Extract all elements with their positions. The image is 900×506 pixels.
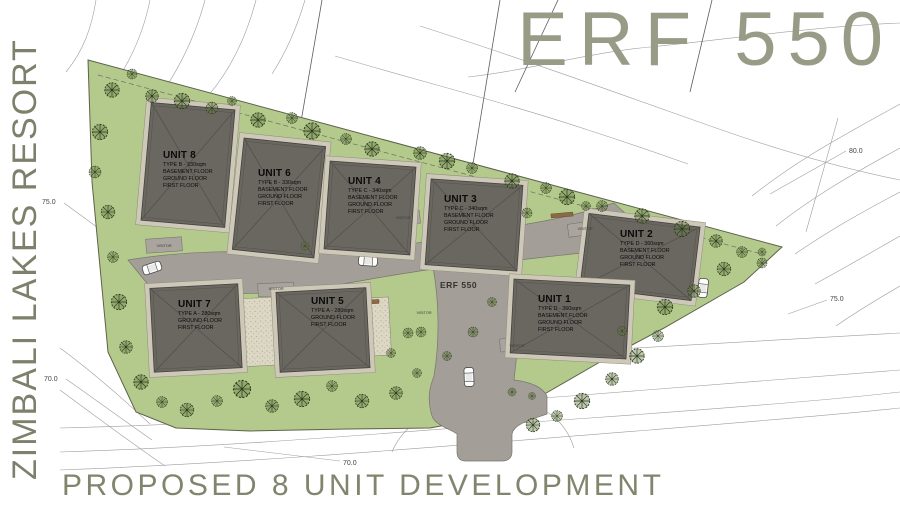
car-icon xyxy=(464,367,474,386)
unit-name: UNIT 6 xyxy=(258,168,291,179)
unit-type: TYPE D - 360sqm xyxy=(538,306,582,312)
unit-floor: FIRST FLOOR xyxy=(163,183,199,189)
unit-type: TYPE B - 330sqm xyxy=(163,162,207,168)
tree-icon xyxy=(266,400,279,413)
unit-name: UNIT 7 xyxy=(178,299,211,310)
visitor-bay-label: VISITOR xyxy=(577,227,592,231)
unit-building xyxy=(505,274,635,364)
unit-floor: BASEMENT FLOOR xyxy=(348,195,398,201)
tree-icon xyxy=(688,285,701,298)
unit-floor: BASEMENT FLOOR xyxy=(538,313,588,319)
unit-type: TYPE A - 280sqm xyxy=(178,311,221,317)
contour-line xyxy=(836,286,900,326)
unit-type: TYPE D - 360sqm xyxy=(620,241,664,247)
visitor-bay-label: VISITOR xyxy=(268,287,283,291)
unit-name: UNIT 2 xyxy=(620,229,653,240)
road-erf-label: ERF 550 xyxy=(440,280,477,290)
unit-floor: BASEMENT FLOOR xyxy=(620,248,670,254)
contour-line xyxy=(806,118,838,232)
tree-icon xyxy=(228,97,237,106)
unit-floor: FIRST FLOOR xyxy=(538,327,574,333)
visitor-bay-label: VISITOR xyxy=(509,344,524,348)
unit-type: TYPE A - 280sqm xyxy=(311,308,354,314)
tree-icon xyxy=(522,208,532,218)
tree-icon xyxy=(559,189,574,204)
tree-icon xyxy=(111,294,126,309)
unit-floor: BASEMENT FLOOR xyxy=(258,187,308,193)
unit-name: UNIT 3 xyxy=(444,194,477,205)
unit-floor: GROUND FLOOR xyxy=(163,176,207,182)
tree-icon xyxy=(630,349,644,363)
tree-icon xyxy=(541,183,552,194)
unit-floor: GROUND FLOOR xyxy=(620,255,664,261)
tree-icon xyxy=(387,349,396,358)
tree-icon xyxy=(105,83,119,97)
tree-icon xyxy=(127,69,137,79)
tree-icon xyxy=(488,298,497,307)
visitor-bay-label: VISITOR xyxy=(416,311,431,315)
unit-building xyxy=(319,156,422,260)
tree-icon xyxy=(674,221,689,236)
site-plan-page: ERF 550 UNIT 8TYPE B - 330sqmBASEMENT FL… xyxy=(0,0,900,506)
tree-icon xyxy=(439,153,454,168)
tree-icon xyxy=(327,381,338,392)
tree-icon xyxy=(758,248,766,256)
tree-icon xyxy=(206,102,218,114)
tree-icon xyxy=(403,328,413,338)
visitor-bay-label: VISITOR xyxy=(156,244,171,248)
tree-icon xyxy=(468,327,478,337)
unit-name: UNIT 4 xyxy=(348,176,381,187)
erf-main-title: ERF 550 xyxy=(474,0,894,80)
tree-icon xyxy=(92,124,107,139)
tree-icon xyxy=(89,166,101,178)
tree-icon xyxy=(467,163,478,174)
tree-icon xyxy=(528,392,535,399)
unit-type: TYPE C - 340sqm xyxy=(348,188,392,194)
contour-label-75-right: 75.0 xyxy=(830,296,844,303)
tree-icon xyxy=(597,201,608,212)
unit-floor: GROUND FLOOR xyxy=(178,318,222,324)
unit-floor: FIRST FLOOR xyxy=(178,325,214,331)
tree-icon xyxy=(174,93,189,108)
tree-icon xyxy=(108,252,119,263)
tree-icon xyxy=(737,247,748,258)
tree-icon xyxy=(552,411,563,422)
tree-icon xyxy=(101,205,115,219)
contour-label-70-left: 70.0 xyxy=(44,376,58,383)
tree-icon xyxy=(287,113,298,124)
development-bottom-title: PROPOSED 8 UNIT DEVELOPMENT xyxy=(62,469,664,503)
tree-icon xyxy=(657,299,672,314)
tree-icon xyxy=(508,388,516,396)
tree-icon xyxy=(526,418,540,432)
contour-line xyxy=(788,300,827,314)
tree-icon xyxy=(582,202,591,211)
tree-icon xyxy=(505,174,519,188)
unit-floor: GROUND FLOOR xyxy=(444,220,488,226)
unit-type: TYPE B - 330sqm xyxy=(258,180,302,186)
unit-floor: FIRST FLOOR xyxy=(311,322,347,328)
tree-icon xyxy=(304,123,320,139)
tree-icon xyxy=(341,134,352,145)
unit-name: UNIT 1 xyxy=(538,294,571,305)
contour-line xyxy=(224,447,340,461)
tree-icon xyxy=(146,90,159,103)
contour-label-70-bottom: 70.0 xyxy=(343,460,357,467)
unit-floor: FIRST FLOOR xyxy=(444,227,480,233)
tree-icon xyxy=(180,403,194,417)
unit-floor: GROUND FLOOR xyxy=(538,320,582,326)
contour-line xyxy=(208,0,256,96)
tree-icon xyxy=(653,331,664,342)
tree-icon xyxy=(618,327,627,336)
tree-icon xyxy=(301,242,309,250)
tree-icon xyxy=(157,397,168,408)
contour-label-80: 80.0 xyxy=(849,148,863,155)
tree-icon xyxy=(120,341,133,354)
unit-floor: FIRST FLOOR xyxy=(258,201,294,207)
unit-floor: GROUND FLOOR xyxy=(348,202,392,208)
unit-name: UNIT 8 xyxy=(163,150,196,161)
tree-icon xyxy=(390,387,403,400)
resort-side-title: ZIMBALI LAKES RESORT xyxy=(6,0,45,480)
unit-floor: FIRST FLOOR xyxy=(620,262,656,268)
tree-icon xyxy=(134,375,148,389)
tree-icon xyxy=(635,209,649,223)
unit-floor: BASEMENT FLOOR xyxy=(444,213,494,219)
tree-icon xyxy=(294,391,309,406)
tree-icon xyxy=(212,396,223,407)
unit-name: UNIT 5 xyxy=(311,296,344,307)
unit-floor: GROUND FLOOR xyxy=(258,194,302,200)
contour-line xyxy=(776,148,900,226)
tree-icon xyxy=(413,369,422,378)
visitor-bay-label: VISITOR xyxy=(395,216,410,220)
tree-icon xyxy=(757,258,767,268)
tree-icon xyxy=(416,327,426,337)
unit-floor: FIRST FLOOR xyxy=(348,209,384,215)
tree-icon xyxy=(355,394,369,408)
tree-icon xyxy=(443,352,452,361)
tree-icon xyxy=(574,393,589,408)
contour-line xyxy=(752,104,900,196)
tree-icon xyxy=(233,380,250,397)
unit-floor: GROUND FLOOR xyxy=(311,315,355,321)
unit-floor: BASEMENT FLOOR xyxy=(163,169,213,175)
tree-icon xyxy=(717,262,731,276)
contour-line xyxy=(272,0,305,74)
tree-icon xyxy=(710,235,723,248)
tree-icon xyxy=(365,142,379,156)
contour-line xyxy=(815,236,900,284)
tree-icon xyxy=(606,373,619,386)
tree-icon xyxy=(251,113,265,127)
unit-type: TYPE C - 340sqm xyxy=(444,206,488,212)
tree-icon xyxy=(414,147,427,160)
